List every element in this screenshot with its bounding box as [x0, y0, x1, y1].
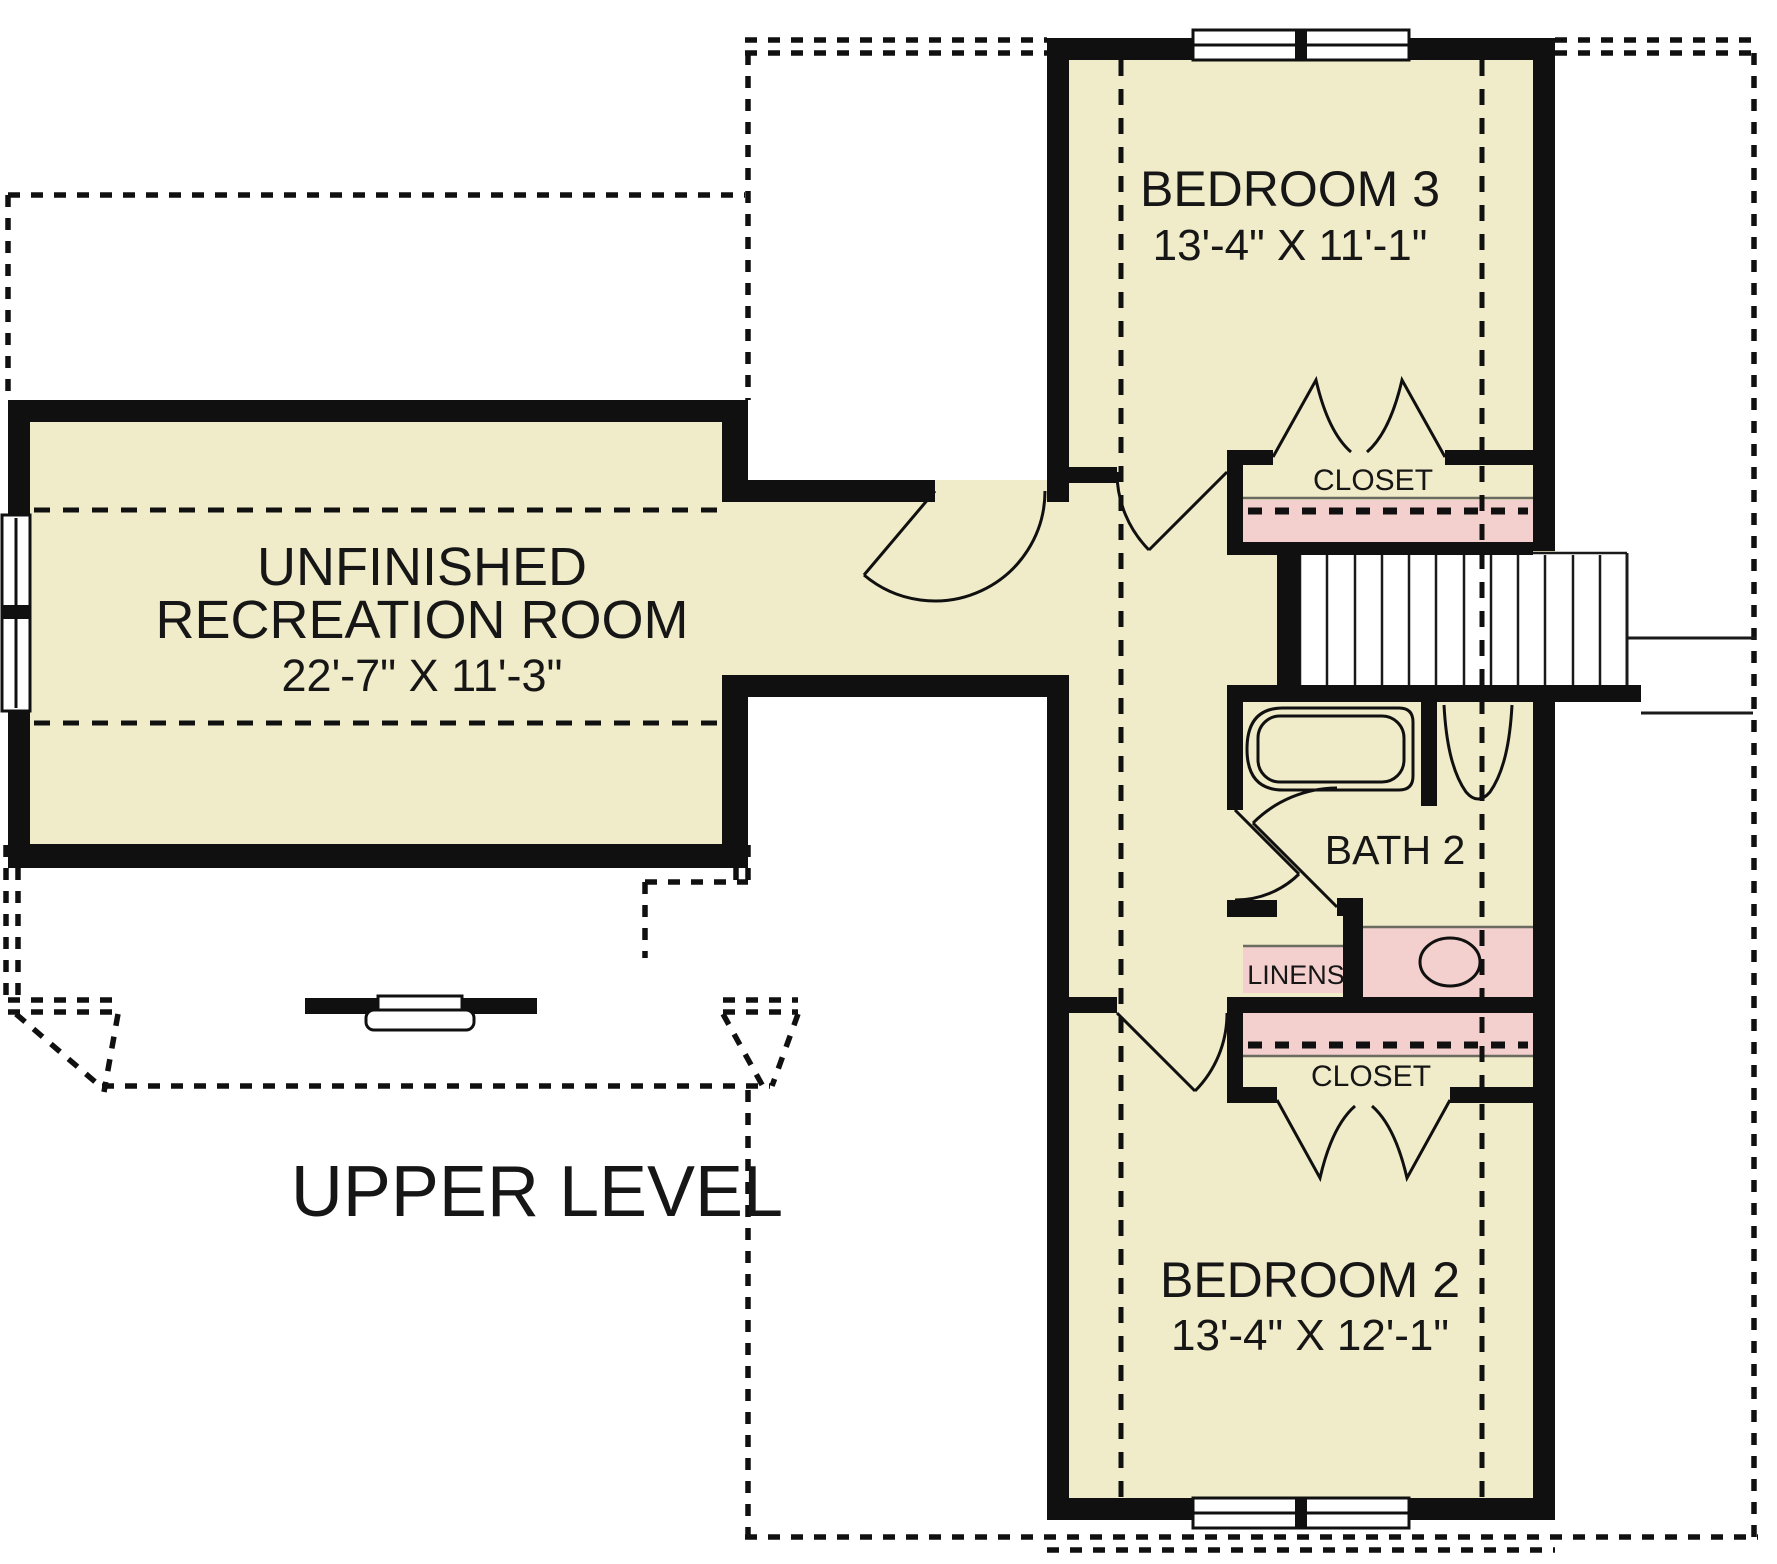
bedroom2-dims: 13'-4" X 12'-1": [1171, 1311, 1449, 1360]
floor-plan-drawing: BEDROOM 3 13'-4" X 11'-1" CLOSET BATH 2 …: [0, 0, 1777, 1564]
wall: [1337, 898, 1363, 916]
closet3-shelf-band: [1243, 500, 1533, 542]
wall: [1227, 1087, 1277, 1103]
level-title: UPPER LEVEL: [291, 1152, 783, 1232]
wall: [1445, 450, 1533, 465]
corridor-floor: [722, 480, 1069, 697]
window-mullion: [1295, 30, 1307, 60]
recreation-dims: 22'-7" X 11'-3": [282, 650, 563, 701]
wall: [1069, 467, 1117, 483]
floor-plan-page: BEDROOM 3 13'-4" X 11'-1" CLOSET BATH 2 …: [0, 0, 1777, 1564]
bedroom3-dims: 13'-4" X 11'-1": [1153, 221, 1428, 270]
wall: [1227, 997, 1533, 1013]
bath2-label: BATH 2: [1325, 827, 1466, 873]
wall: [8, 400, 748, 422]
closet2-label: CLOSET: [1311, 1060, 1431, 1093]
wall: [1227, 450, 1243, 555]
wall: [722, 400, 748, 502]
wall: [1421, 702, 1437, 806]
wall: [1069, 997, 1117, 1013]
bedroom2-label: BEDROOM 2: [1160, 1252, 1460, 1308]
linens-label: LINENS: [1247, 960, 1345, 990]
window-mullion: [2, 605, 30, 619]
wall: [1227, 685, 1641, 702]
window-mullion: [1295, 1498, 1307, 1528]
recreation-label-line2: RECREATION ROOM: [155, 590, 688, 650]
wall: [1277, 551, 1300, 702]
closet3-label: CLOSET: [1313, 464, 1433, 497]
wall: [1533, 38, 1555, 551]
bedroom3-label: BEDROOM 3: [1140, 161, 1440, 217]
wall: [722, 675, 748, 868]
wall: [1227, 900, 1277, 917]
wall: [748, 480, 935, 502]
wall: [1047, 38, 1069, 502]
dormer-window-sill: [366, 1010, 474, 1030]
wall: [1343, 916, 1363, 997]
wall: [1047, 675, 1069, 1520]
closet2-shelf-band: [1243, 1013, 1533, 1055]
wall: [1227, 702, 1243, 810]
wall: [1450, 1087, 1533, 1103]
wall: [748, 675, 1069, 697]
recreation-label-line1: UNFINISHED: [257, 537, 587, 597]
wall: [8, 844, 748, 868]
wall: [1533, 702, 1555, 1520]
